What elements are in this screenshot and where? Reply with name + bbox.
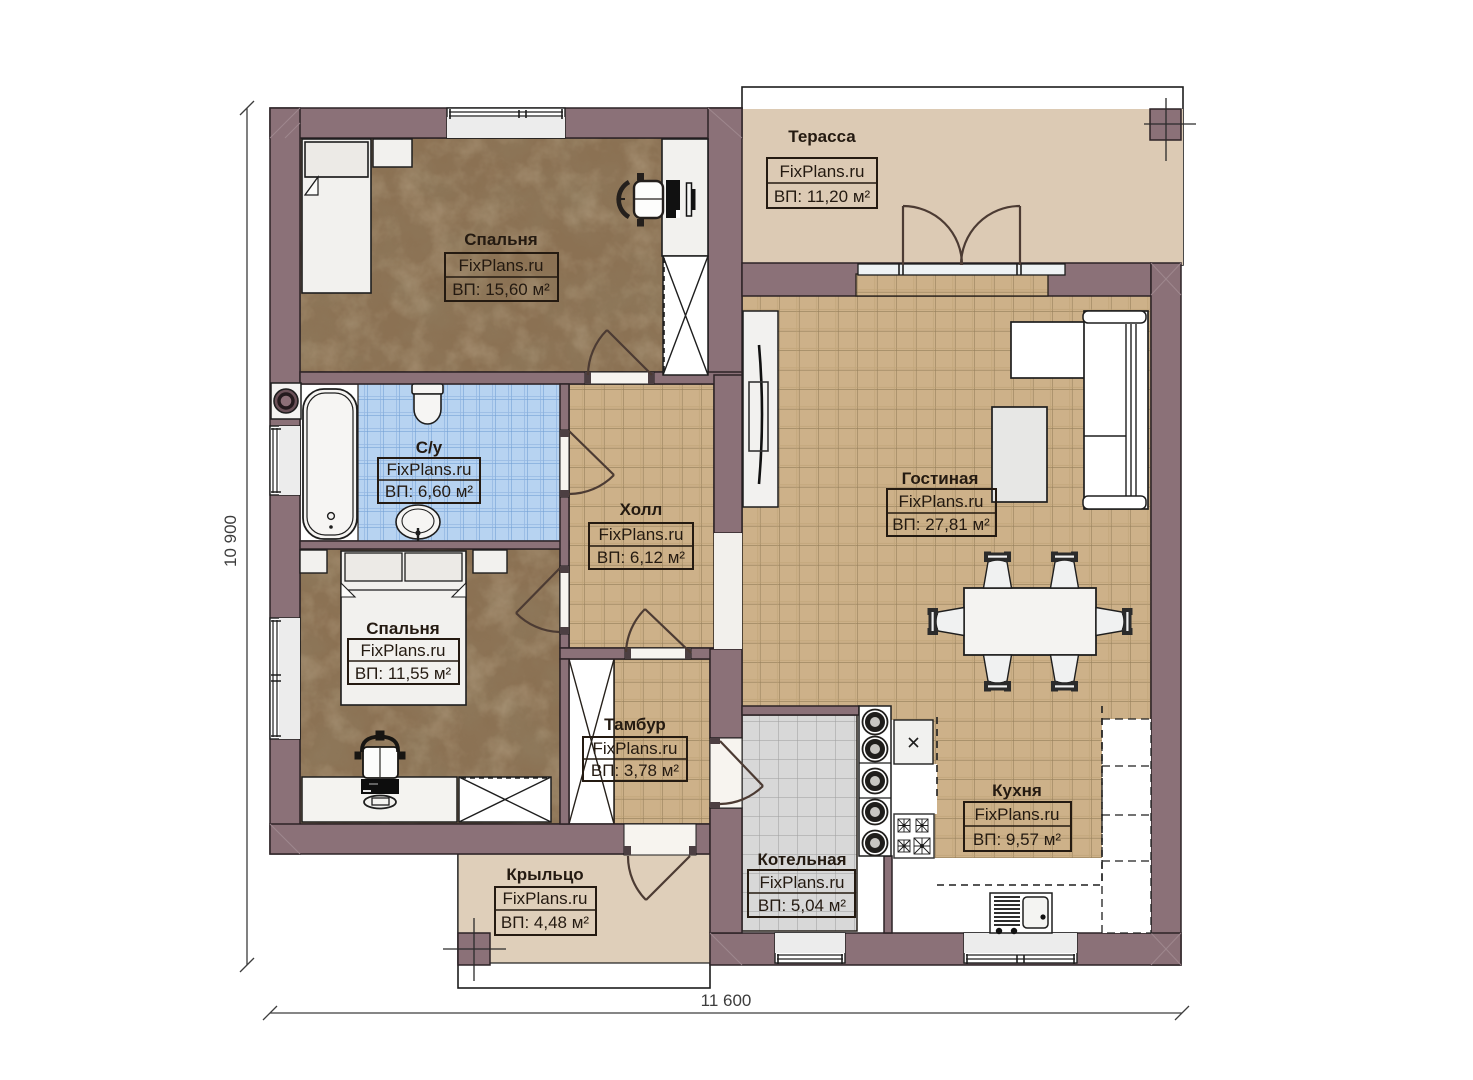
svg-text:С/у: С/у — [416, 438, 443, 457]
svg-text:Крыльцо: Крыльцо — [506, 865, 583, 884]
svg-text:ВП: 5,04 м²: ВП: 5,04 м² — [758, 896, 847, 915]
svg-text:Спальня: Спальня — [366, 619, 439, 638]
svg-text:ВП: 6,60 м²: ВП: 6,60 м² — [385, 482, 474, 501]
svg-text:10 900: 10 900 — [221, 515, 240, 567]
svg-text:FixPlans.ru: FixPlans.ru — [360, 641, 445, 660]
svg-text:FixPlans.ru: FixPlans.ru — [598, 525, 683, 544]
svg-text:ВП: 9,57 м²: ВП: 9,57 м² — [973, 830, 1062, 849]
svg-text:Гостиная: Гостиная — [902, 469, 979, 488]
svg-text:FixPlans.ru: FixPlans.ru — [759, 873, 844, 892]
svg-text:FixPlans.ru: FixPlans.ru — [898, 492, 983, 511]
svg-text:ВП: 4,48 м²: ВП: 4,48 м² — [501, 913, 590, 932]
svg-text:Терасса: Терасса — [788, 127, 856, 146]
svg-text:FixPlans.ru: FixPlans.ru — [974, 805, 1059, 824]
svg-text:FixPlans.ru: FixPlans.ru — [592, 739, 677, 758]
svg-text:Кухня: Кухня — [992, 781, 1042, 800]
svg-text:Котельная: Котельная — [757, 850, 846, 869]
svg-text:Холл: Холл — [620, 500, 663, 519]
svg-text:ВП: 3,78 м²: ВП: 3,78 м² — [591, 761, 680, 780]
svg-text:FixPlans.ru: FixPlans.ru — [458, 256, 543, 275]
svg-text:ВП: 15,60 м²: ВП: 15,60 м² — [452, 280, 550, 299]
svg-text:ВП: 11,20 м²: ВП: 11,20 м² — [774, 187, 871, 206]
svg-text:Спальня: Спальня — [464, 230, 537, 249]
svg-text:ВП: 27,81 м²: ВП: 27,81 м² — [892, 515, 990, 534]
svg-text:11 600: 11 600 — [701, 991, 752, 1010]
svg-text:ВП: 11,55 м²: ВП: 11,55 м² — [355, 664, 452, 683]
svg-text:FixPlans.ru: FixPlans.ru — [502, 889, 587, 908]
svg-text:FixPlans.ru: FixPlans.ru — [779, 162, 864, 181]
svg-text:ВП: 6,12 м²: ВП: 6,12 м² — [597, 548, 686, 567]
svg-text:Тамбур: Тамбур — [604, 715, 666, 734]
svg-text:FixPlans.ru: FixPlans.ru — [386, 460, 471, 479]
